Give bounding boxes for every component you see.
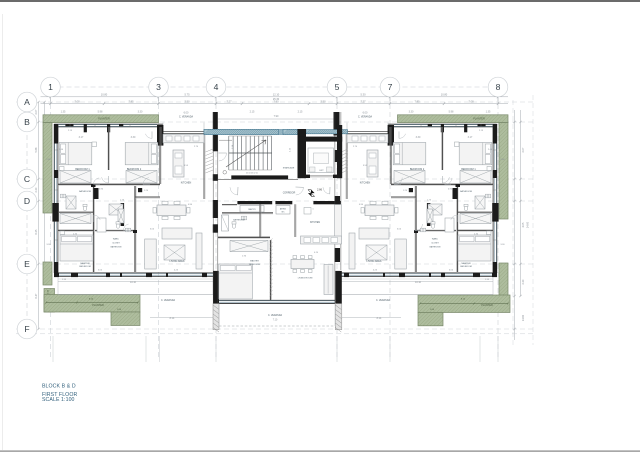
svg-text:3.30: 3.30 (416, 136, 421, 139)
svg-text:7.85: 7.85 (414, 99, 420, 103)
svg-text:4.05: 4.05 (522, 222, 525, 227)
svg-text:3.50: 3.50 (184, 99, 190, 103)
svg-text:2.20: 2.20 (35, 187, 38, 192)
svg-text:10.80: 10.80 (441, 93, 448, 97)
svg-text:CLOSET: CLOSET (431, 243, 439, 245)
svg-text:3.17: 3.17 (79, 136, 84, 139)
svg-text:MASTER: MASTER (461, 262, 471, 265)
svg-text:2.07: 2.07 (522, 147, 525, 152)
svg-text:PANTRY: PANTRY (248, 208, 256, 211)
svg-text:5.30: 5.30 (360, 93, 366, 97)
svg-text:3.17: 3.17 (468, 136, 473, 139)
svg-text:PLANTER: PLANTER (98, 118, 110, 121)
svg-text:7.27: 7.27 (360, 99, 366, 103)
svg-text:7.08: 7.08 (468, 99, 474, 103)
svg-text:WARD.: WARD. (432, 238, 439, 241)
svg-text:A: A (24, 97, 30, 107)
svg-text:BATHROOM: BATHROOM (79, 190, 91, 193)
svg-text:LIVING AREA: LIVING AREA (367, 260, 382, 263)
svg-text:KITCHEN: KITCHEN (310, 222, 320, 224)
svg-text:C. VERANDA: C. VERANDA (268, 314, 283, 317)
svg-text:KITCHEN: KITCHEN (181, 182, 192, 185)
svg-text:SCALE 1:100: SCALE 1:100 (42, 397, 75, 403)
svg-text:7.90: 7.90 (273, 99, 279, 103)
svg-text:BATHROOM: BATHROOM (430, 246, 441, 249)
svg-text:CORRIDOR: CORRIDOR (283, 193, 296, 195)
svg-text:10.80: 10.80 (101, 93, 108, 97)
svg-text:LIVING ROOM: LIVING ROOM (298, 277, 313, 279)
svg-text:BEDROOM: BEDROOM (249, 264, 260, 266)
svg-text:E: E (24, 259, 30, 269)
svg-text:BEDROOM 2: BEDROOM 2 (127, 168, 142, 171)
svg-text:14.60: 14.60 (527, 221, 530, 228)
svg-text:LIVING AREA: LIVING AREA (170, 260, 185, 263)
svg-text:BATHROOM: BATHROOM (233, 219, 245, 222)
svg-text:BEDROOM 2: BEDROOM 2 (410, 168, 425, 171)
svg-text:AIRING: AIRING (280, 207, 287, 210)
svg-text:8: 8 (496, 82, 501, 92)
svg-text:14.60: 14.60 (522, 314, 525, 321)
svg-text:5.75: 5.75 (184, 93, 190, 97)
svg-text:2.86: 2.86 (317, 187, 323, 191)
svg-text:MASTER: MASTER (250, 259, 259, 262)
svg-text:7.10: 7.10 (273, 320, 278, 322)
svg-text:1.35: 1.35 (61, 110, 66, 113)
svg-text:3.30: 3.30 (138, 110, 143, 113)
svg-text:C: C (24, 174, 30, 184)
svg-text:CLOSET: CLOSET (112, 243, 120, 245)
svg-text:5: 5 (335, 82, 340, 92)
svg-text:05 04 03 02 01: 05 04 03 02 01 (246, 173, 258, 175)
svg-text:C. VERANDA: C. VERANDA (358, 116, 373, 119)
svg-text:D: D (24, 196, 30, 206)
svg-text:1.35: 1.35 (486, 110, 491, 113)
svg-text:BEDROOM 1: BEDROOM 1 (461, 168, 476, 171)
svg-text:BATHROOM: BATHROOM (460, 190, 472, 193)
svg-text:3: 3 (156, 82, 161, 92)
svg-text:STAIRCASE: STAIRCASE (283, 167, 295, 170)
svg-text:7.85: 7.85 (128, 99, 134, 103)
svg-text:2.15: 2.15 (250, 110, 255, 113)
svg-text:C. VERANDA: C. VERANDA (376, 299, 391, 302)
svg-text:7.90: 7.90 (274, 115, 279, 118)
svg-text:PLANTER: PLANTER (473, 118, 485, 121)
svg-text:C. VERANDA: C. VERANDA (179, 116, 194, 119)
svg-text:B: B (24, 117, 30, 127)
svg-text:2.20: 2.20 (522, 279, 525, 284)
svg-text:6.00: 6.00 (363, 112, 368, 115)
svg-text:3.50: 3.50 (320, 99, 326, 103)
svg-text:3.30: 3.30 (131, 136, 136, 139)
svg-text:MASTER: MASTER (80, 262, 90, 265)
svg-text:BATHROOM: BATHROOM (111, 246, 122, 249)
svg-text:2.07: 2.07 (35, 109, 38, 114)
svg-text:12.10: 12.10 (273, 93, 280, 97)
svg-text:6.00: 6.00 (184, 112, 189, 115)
svg-text:6.47: 6.47 (35, 293, 38, 298)
svg-text:5.98: 5.98 (98, 110, 103, 113)
svg-text:7.27: 7.27 (226, 99, 232, 103)
svg-text:BEDROOM: BEDROOM (460, 266, 471, 268)
svg-text:6.25: 6.25 (35, 229, 38, 234)
svg-text:4: 4 (214, 82, 219, 92)
svg-text:1: 1 (48, 82, 53, 92)
svg-text:5.98: 5.98 (449, 110, 454, 113)
svg-text:KITCHEN: KITCHEN (360, 182, 371, 185)
svg-text:PLANTER: PLANTER (481, 304, 493, 307)
svg-text:BEDROOM: BEDROOM (79, 266, 90, 268)
svg-text:BLOCK B & D: BLOCK B & D (42, 384, 76, 390)
svg-text:3.30: 3.30 (409, 110, 414, 113)
svg-text:F: F (24, 324, 29, 334)
svg-text:7: 7 (388, 82, 393, 92)
svg-text:BEDROOM 1: BEDROOM 1 (75, 168, 90, 171)
svg-text:5.68: 5.68 (35, 147, 38, 152)
svg-text:C. VERANDA: C. VERANDA (161, 299, 176, 302)
svg-text:1: 1 (313, 209, 314, 211)
svg-text:7.08: 7.08 (74, 99, 80, 103)
svg-text:WARD.: WARD. (113, 238, 120, 241)
svg-text:2.15: 2.15 (298, 110, 303, 113)
svg-text:PLANTER: PLANTER (92, 304, 104, 307)
